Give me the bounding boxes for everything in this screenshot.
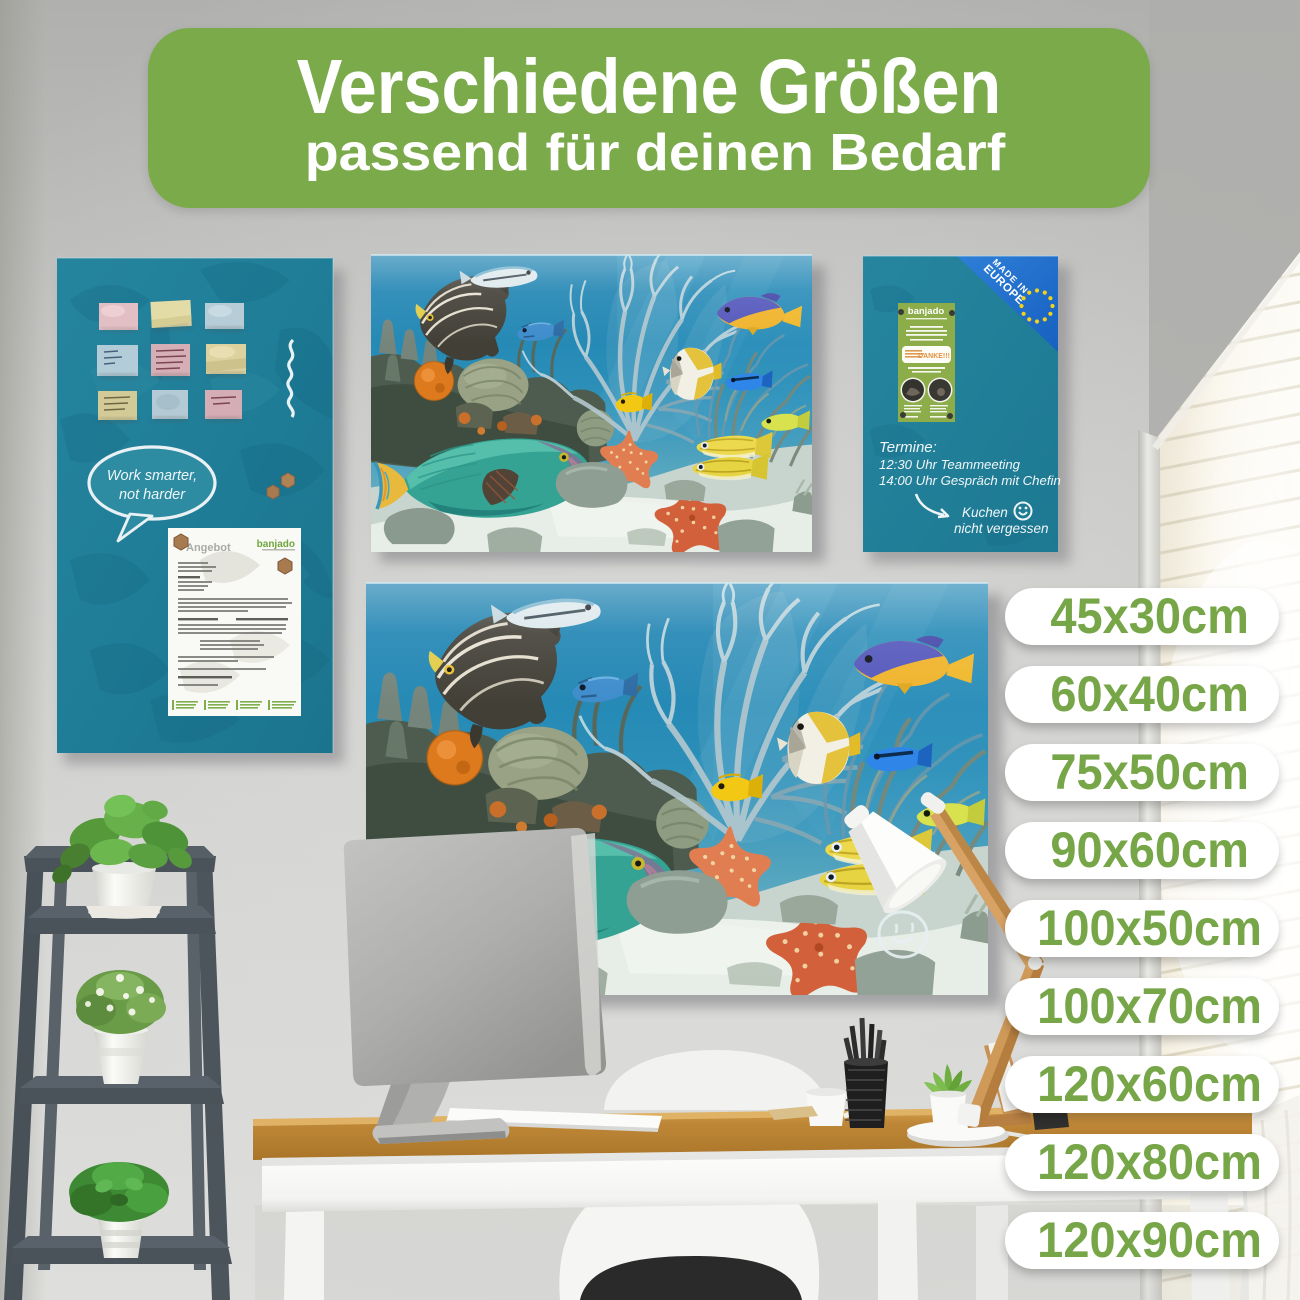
svg-text:DANKE!!!: DANKE!!! bbox=[918, 353, 950, 360]
svg-text:nicht vergessen: nicht vergessen bbox=[954, 521, 1049, 536]
svg-text:12:30 Uhr Teammeeting: 12:30 Uhr Teammeeting bbox=[879, 457, 1021, 472]
svg-text:Angebot: Angebot bbox=[186, 542, 231, 554]
svg-text:Work smarter,: Work smarter, bbox=[107, 468, 197, 484]
svg-text:Kuchen: Kuchen bbox=[962, 505, 1008, 520]
svg-text:not harder: not harder bbox=[119, 487, 186, 503]
svg-text:14:00 Uhr Gespräch mit Chefin: 14:00 Uhr Gespräch mit Chefin bbox=[879, 473, 1061, 488]
svg-text:banjado: banjado bbox=[257, 539, 295, 550]
svg-text:banjado: banjado bbox=[908, 306, 945, 317]
svg-text:Termine:: Termine: bbox=[879, 439, 937, 456]
